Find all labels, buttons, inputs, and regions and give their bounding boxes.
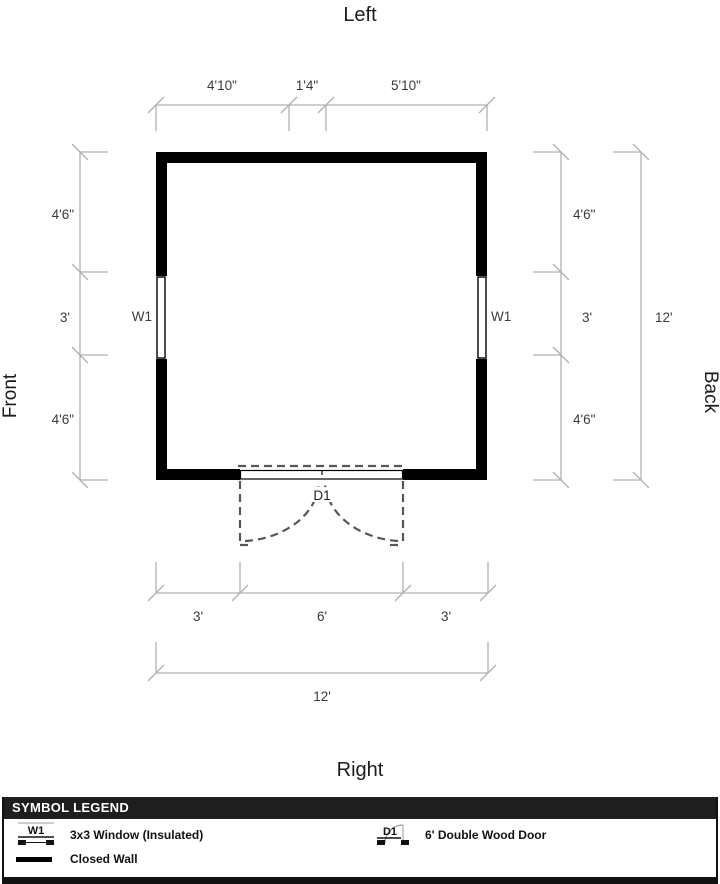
- symbol-legend: SYMBOL LEGEND W1 3x3 Window (Insulated) …: [2, 797, 718, 884]
- left-dimension-lines: [72, 144, 108, 488]
- left-dim-label-2: 3': [60, 310, 70, 325]
- door-label: D1: [313, 488, 330, 503]
- top-dim-label-2: 1'4": [296, 78, 319, 93]
- symbol-legend-body: W1 3x3 Window (Insulated) D1 6' Double W…: [4, 819, 716, 877]
- floor-plan-svg: Left Right Front Back 4'10" 1'4" 5'10" 4…: [0, 0, 720, 790]
- door-symbol-icon: D1: [375, 822, 411, 848]
- legend-item-window: W1 3x3 Window (Insulated): [16, 822, 203, 848]
- floor-plan: Left Right Front Back 4'10" 1'4" 5'10" 4…: [0, 0, 720, 790]
- bottom-total-dim-label: 12': [313, 689, 331, 704]
- left-window: [157, 277, 165, 358]
- legend-label-closed-wall: Closed Wall: [70, 852, 138, 866]
- closed-wall-icon: [16, 857, 52, 862]
- left-dim-label-3: 4'6": [52, 412, 75, 427]
- symbol-legend-header: SYMBOL LEGEND: [4, 797, 716, 819]
- legend-label-door: 6' Double Wood Door: [425, 828, 546, 842]
- right-window: [478, 277, 486, 358]
- right-total-dim-label: 12': [655, 310, 673, 325]
- top-dimension-lines: [148, 97, 495, 131]
- right-dim-label-3: 4'6": [573, 412, 596, 427]
- right-dim-label-2: 3': [582, 310, 592, 325]
- orientation-label-right: Back: [700, 371, 720, 414]
- orientation-label-left: Front: [0, 373, 21, 418]
- top-dim-label-1: 4'10": [207, 78, 237, 93]
- top-dim-label-3: 5'10": [391, 78, 421, 93]
- orientation-label-top: Left: [343, 4, 377, 26]
- right-window-label: W1: [491, 309, 511, 324]
- bottom-dim-label-1: 3': [193, 609, 203, 624]
- left-window-label: W1: [132, 309, 152, 324]
- orientation-label-bottom: Right: [337, 759, 384, 781]
- right-dim-label-1: 4'6": [573, 207, 596, 222]
- legend-item-door: D1 6' Double Wood Door: [375, 822, 546, 848]
- building-walls: [156, 152, 487, 480]
- bottom-dim-label-3: 3': [441, 609, 451, 624]
- left-dim-label-1: 4'6": [52, 207, 75, 222]
- bottom-dim-label-2: 6': [317, 609, 327, 624]
- legend-label-window: 3x3 Window (Insulated): [70, 828, 203, 842]
- window-symbol-icon: W1: [16, 822, 56, 848]
- window-symbol-label: W1: [28, 825, 45, 837]
- door-symbol-label: D1: [383, 826, 397, 838]
- legend-item-closed-wall: Closed Wall: [16, 852, 138, 866]
